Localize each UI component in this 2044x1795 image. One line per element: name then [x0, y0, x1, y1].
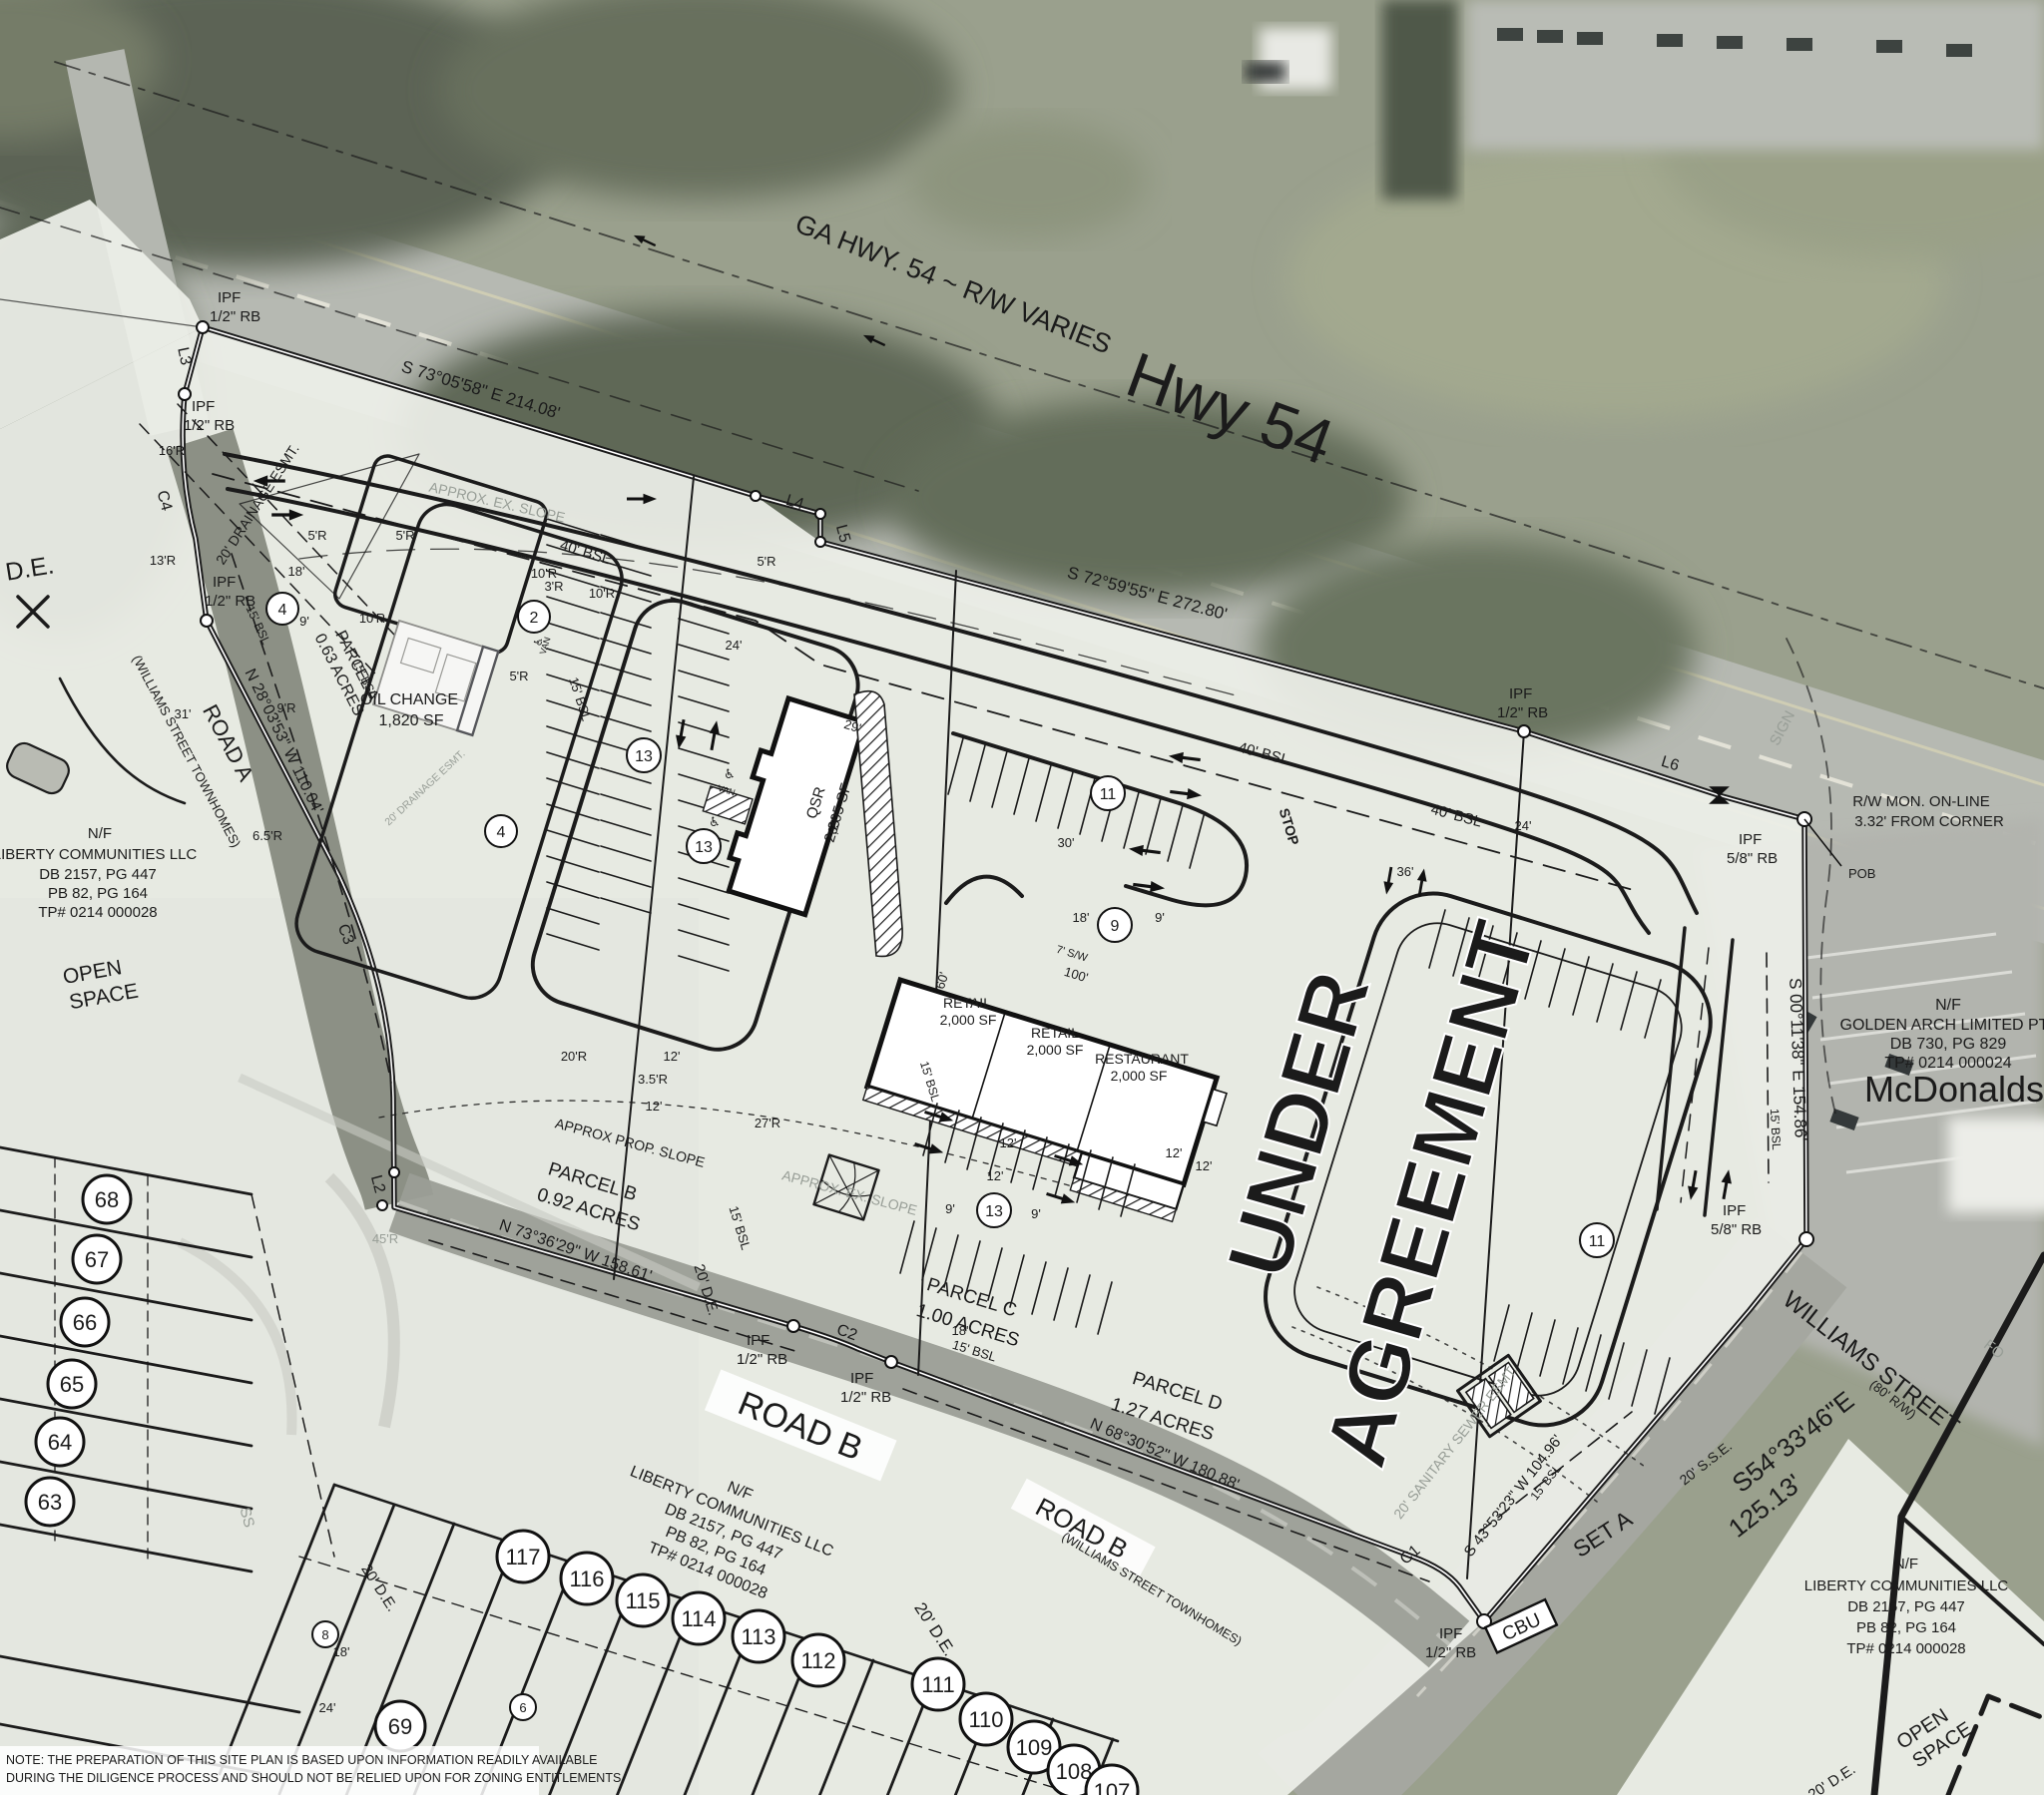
svg-text:16'R: 16'R	[159, 443, 185, 458]
retail-mid-label-1: RETAIL	[1031, 1025, 1079, 1041]
svg-text:4: 4	[278, 602, 287, 619]
svg-text:65: 65	[60, 1372, 84, 1397]
svg-text:15' BSL: 15' BSL	[1768, 1109, 1784, 1151]
svg-text:12': 12'	[1000, 1135, 1017, 1150]
svg-text:5/8" RB: 5/8" RB	[1727, 850, 1778, 867]
svg-text:11: 11	[1100, 786, 1117, 803]
svg-text:DB 730, PG 829: DB 730, PG 829	[1890, 1036, 2007, 1053]
svg-text:13'R: 13'R	[150, 553, 176, 568]
svg-text:9': 9'	[299, 614, 309, 629]
svg-text:68: 68	[95, 1187, 119, 1212]
svg-text:1/2" RB: 1/2" RB	[1425, 1644, 1476, 1661]
svg-text:IPF: IPF	[1739, 831, 1762, 848]
svg-text:12': 12'	[1166, 1145, 1183, 1160]
pob-label: POB	[1848, 866, 1875, 881]
svg-text:13: 13	[985, 1203, 1003, 1220]
svg-text:8: 8	[321, 1627, 328, 1642]
svg-text:67: 67	[85, 1247, 109, 1272]
svg-text:18': 18'	[288, 564, 305, 579]
svg-text:13: 13	[635, 748, 653, 765]
svg-text:116: 116	[569, 1567, 604, 1591]
svg-text:DB 2157, PG 447: DB 2157, PG 447	[1847, 1598, 1965, 1615]
svg-text:4: 4	[497, 824, 506, 841]
note-line-1: NOTE: THE PREPARATION OF THIS SITE PLAN …	[6, 1753, 598, 1767]
svg-text:111: 111	[921, 1672, 954, 1697]
svg-text:12': 12'	[664, 1049, 681, 1064]
svg-text:12': 12'	[1196, 1158, 1213, 1173]
svg-text:L3: L3	[174, 346, 194, 367]
mcdonalds-building	[1948, 1118, 2044, 1212]
svg-text:5'R: 5'R	[509, 669, 528, 683]
oil-change-label-2: 1,820 SF	[379, 712, 444, 729]
handicap-icon: ♿	[724, 766, 736, 781]
svg-text:12': 12'	[987, 1168, 1004, 1183]
svg-text:IPF: IPF	[1439, 1625, 1462, 1642]
svg-text:IPF: IPF	[1723, 1202, 1746, 1219]
svg-text:45'R: 45'R	[372, 1231, 398, 1246]
svg-text:107: 107	[1094, 1779, 1131, 1795]
svg-text:10'R: 10'R	[589, 586, 615, 601]
svg-text:11: 11	[1589, 1233, 1606, 1250]
svg-text:18': 18'	[1073, 910, 1090, 925]
svg-text:113: 113	[741, 1624, 775, 1649]
tree-row	[1382, 0, 1457, 200]
svg-text:1/2" RB: 1/2" RB	[184, 417, 235, 434]
svg-text:63: 63	[38, 1490, 62, 1515]
restaurant-label-2: 2,000 SF	[1111, 1068, 1168, 1084]
svg-text:5/8" RB: 5/8" RB	[1711, 1221, 1762, 1238]
svg-text:24': 24'	[1515, 818, 1532, 833]
svg-text:24': 24'	[726, 638, 743, 653]
parking-lot-top	[1467, 0, 2044, 150]
note-line-2: DURING THE DILIGENCE PROCESS AND SHOULD …	[6, 1771, 621, 1785]
svg-text:IPF: IPF	[192, 398, 215, 415]
svg-text:1/2" RB: 1/2" RB	[1497, 704, 1548, 721]
svg-text:30': 30'	[1058, 835, 1075, 850]
svg-text:10'R: 10'R	[359, 611, 385, 626]
svg-text:5'R: 5'R	[757, 554, 775, 569]
svg-text:110: 110	[968, 1707, 1003, 1732]
svg-text:36': 36'	[1397, 864, 1414, 879]
svg-text:LIBERTY COMMUNITIES LLC: LIBERTY COMMUNITIES LLC	[0, 846, 197, 863]
svg-text:3'R: 3'R	[544, 579, 563, 594]
svg-text:IPF: IPF	[747, 1332, 769, 1349]
site-plan-screenshot: ♿ ♿ ♿ GA HWY. 54 ~ R/W VARIES Hwy 54 S 7…	[0, 0, 2044, 1795]
svg-text:5'R: 5'R	[395, 528, 414, 543]
svg-text:PB 82, PG 164: PB 82, PG 164	[48, 885, 148, 902]
svg-text:117: 117	[505, 1545, 540, 1570]
svg-text:N/F: N/F	[88, 825, 112, 842]
svg-text:TP# 0214 000028: TP# 0214 000028	[38, 904, 157, 921]
handicap-icon: ♿	[709, 814, 721, 829]
svg-text:IPF: IPF	[1509, 685, 1532, 702]
retail-west-label-2: 2,000 SF	[940, 1012, 997, 1028]
svg-text:27'R: 27'R	[755, 1116, 780, 1130]
svg-text:LIBERTY COMMUNITIES LLC: LIBERTY COMMUNITIES LLC	[1804, 1577, 2009, 1594]
svg-text:112: 112	[800, 1648, 835, 1673]
svg-text:24': 24'	[319, 1700, 336, 1715]
svg-text:31': 31'	[175, 706, 192, 721]
svg-text:3.5'R: 3.5'R	[638, 1072, 668, 1087]
mcdonalds-label: McDonalds	[1864, 1069, 2044, 1110]
retail-west-label-1: RETAIL	[943, 995, 991, 1011]
rw-mon-label-1: R/W MON. ON-LINE	[1852, 793, 1990, 810]
svg-text:69: 69	[388, 1714, 412, 1739]
svg-text:5'R: 5'R	[307, 528, 326, 543]
svg-text:6: 6	[519, 1700, 526, 1715]
retail-mid-label-2: 2,000 SF	[1027, 1042, 1084, 1058]
restaurant-label-1: RESTAURANT	[1095, 1051, 1189, 1067]
svg-text:N/F: N/F	[1935, 997, 1961, 1014]
svg-text:6.5'R: 6.5'R	[253, 828, 282, 843]
svg-text:66: 66	[73, 1310, 97, 1335]
svg-text:1/2" RB: 1/2" RB	[737, 1351, 787, 1368]
svg-text:18': 18'	[333, 1644, 350, 1659]
svg-text:9': 9'	[1155, 910, 1165, 925]
site-plan-svg: ♿ ♿ ♿ GA HWY. 54 ~ R/W VARIES Hwy 54 S 7…	[0, 0, 2044, 1795]
svg-text:PB 82, PG 164: PB 82, PG 164	[1856, 1619, 1956, 1636]
svg-text:13: 13	[695, 839, 713, 856]
svg-text:20'R: 20'R	[561, 1049, 587, 1064]
svg-text:64: 64	[48, 1430, 72, 1455]
svg-text:1/2" RB: 1/2" RB	[840, 1389, 891, 1406]
svg-text:12': 12'	[646, 1099, 663, 1114]
svg-text:IPF: IPF	[213, 574, 236, 591]
svg-text:109: 109	[1016, 1735, 1053, 1760]
ipf-label: IPF	[218, 289, 241, 306]
svg-text:9': 9'	[1031, 1206, 1041, 1221]
svg-text:115: 115	[625, 1588, 660, 1613]
svg-text:9: 9	[1111, 918, 1120, 935]
rw-mon-label-2: 3.32' FROM CORNER	[1854, 813, 2004, 830]
svg-text:IPF: IPF	[850, 1370, 873, 1387]
svg-text:9': 9'	[945, 1201, 955, 1216]
svg-text:GOLDEN ARCH LIMITED PT: GOLDEN ARCH LIMITED PT	[1840, 1017, 2044, 1034]
svg-text:2: 2	[530, 610, 539, 627]
svg-text:TP# 0214 000028: TP# 0214 000028	[1846, 1640, 1965, 1657]
svg-text:9'R: 9'R	[276, 700, 295, 715]
svg-text:DB 2157, PG 447: DB 2157, PG 447	[39, 866, 157, 883]
svg-text:N/F: N/F	[1894, 1556, 1918, 1572]
svg-text:114: 114	[681, 1606, 716, 1631]
svg-text:18': 18'	[952, 1323, 969, 1338]
svg-text:1/2" RB: 1/2" RB	[210, 308, 260, 325]
site-note: NOTE: THE PREPARATION OF THIS SITE PLAN …	[0, 1746, 621, 1795]
